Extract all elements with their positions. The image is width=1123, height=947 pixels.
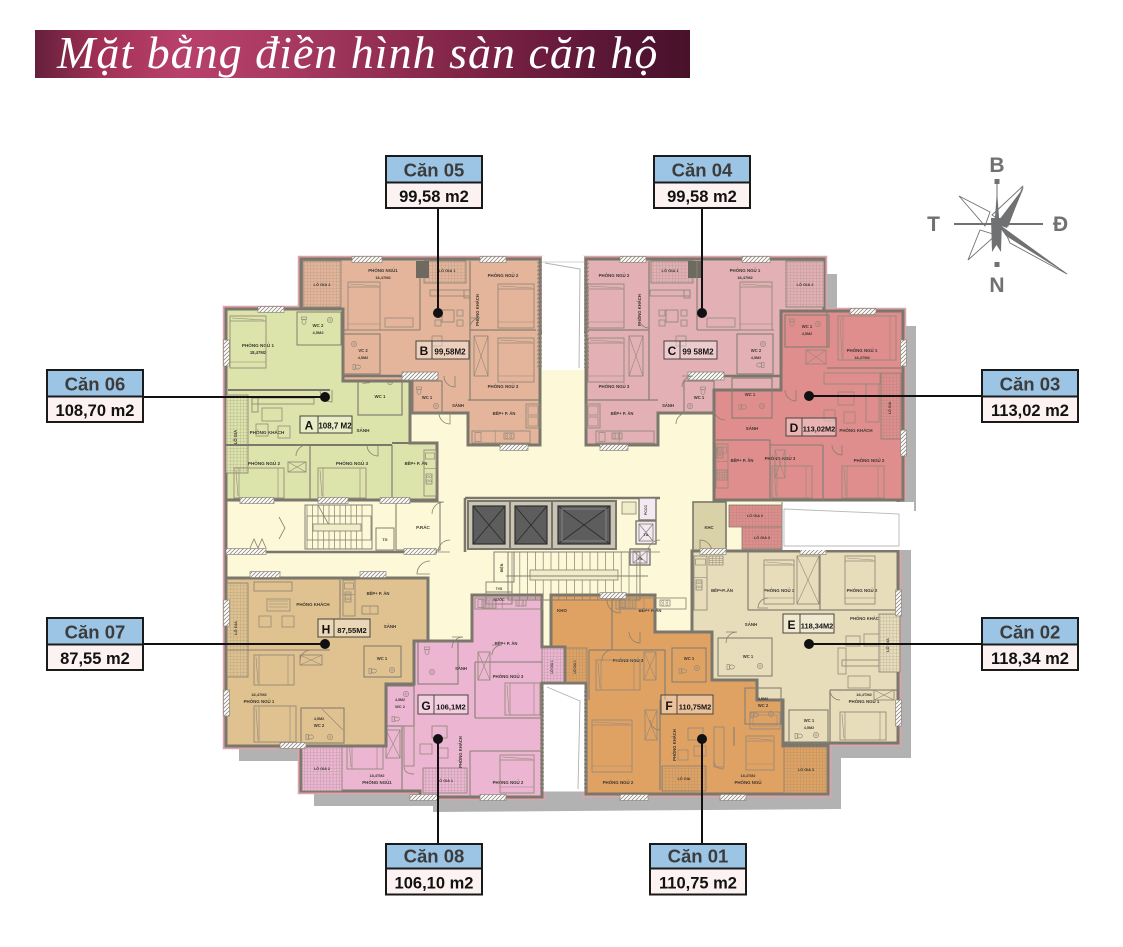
svg-text:TG: TG: [382, 538, 387, 542]
svg-text:TA: TA: [643, 532, 648, 537]
svg-text:PHÒNG NGỦ 2: PHÒNG NGỦ 2: [248, 459, 281, 466]
svg-text:PHÒNG NGỦ 2: PHÒNG NGỦ 2: [603, 780, 634, 785]
svg-text:P.RÁC: P.RÁC: [416, 524, 430, 530]
svg-text:PHÒNG NGỦ 3: PHÒNG NGỦ 3: [493, 674, 524, 679]
svg-text:PHÒNG NGỦ1: PHÒNG NGỦ1: [368, 268, 398, 273]
svg-text:4,5M2: 4,5M2: [751, 356, 762, 360]
svg-text:Căn 06: Căn 06: [65, 374, 126, 395]
svg-text:18,4TM2: 18,4TM2: [741, 774, 756, 778]
svg-text:WC 2: WC 2: [758, 703, 769, 708]
svg-text:Căn 05: Căn 05: [404, 160, 465, 181]
svg-text:18,4TM2: 18,4TM2: [854, 355, 871, 360]
svg-text:PHÒNG NGỦ 3: PHÒNG NGỦ 3: [599, 384, 630, 389]
svg-text:18,47M2: 18,47M2: [250, 350, 267, 355]
svg-text:B: B: [420, 344, 429, 358]
svg-text:108,7 M2: 108,7 M2: [318, 422, 352, 431]
svg-text:PHÒNG NGỦ 1: PHÒNG NGỦ 1: [244, 699, 275, 704]
svg-text:PHÒNG NGỦ: PHÒNG NGỦ: [734, 780, 761, 785]
svg-text:4,5M2: 4,5M2: [358, 356, 369, 360]
svg-text:LÔ GIA 3: LÔ GIA 3: [798, 767, 814, 772]
svg-text:4,5M2: 4,5M2: [312, 330, 324, 335]
svg-text:Căn 03: Căn 03: [1000, 374, 1061, 395]
svg-text:PHÒNG NGỦ 3: PHÒNG NGỦ 3: [488, 384, 519, 389]
svg-text:PHÒNG NGỦ 1: PHÒNG NGỦ 1: [847, 348, 878, 353]
svg-text:PHÒNG NGỦ 2: PHÒNG NGỦ 2: [854, 458, 885, 463]
svg-text:BẾP+ P. ĂN: BẾP+ P. ĂN: [367, 591, 390, 596]
svg-text:PHÒNG KHÁCH: PHÒNG KHÁCH: [475, 294, 480, 326]
svg-text:LÔ GIA 2: LÔ GIA 2: [747, 513, 763, 518]
svg-text:99,58M2: 99,58M2: [434, 348, 466, 357]
svg-text:BẾP+ P. ĂN: BẾP+ P. ĂN: [493, 411, 516, 416]
svg-text:PHÒNG KHÁCH: PHÒNG KHÁCH: [296, 602, 329, 607]
svg-text:110,75 m2: 110,75 m2: [659, 875, 737, 893]
svg-text:SẢNH: SẢNH: [746, 426, 758, 431]
svg-text:WC 1: WC 1: [804, 718, 815, 723]
svg-text:SẢNH: SẢNH: [384, 624, 396, 629]
svg-text:LÔ GIA 1: LÔ GIA 1: [662, 268, 680, 273]
svg-text:WC 1: WC 1: [375, 394, 387, 399]
svg-text:WC 1: WC 1: [422, 395, 433, 400]
svg-text:18,47M2: 18,47M2: [251, 692, 267, 697]
svg-text:18,4TM2: 18,4TM2: [856, 692, 873, 697]
svg-text:BẾP+P..ĂN: BẾP+P..ĂN: [711, 588, 733, 593]
svg-text:ĐIỆN: ĐIỆN: [499, 563, 504, 572]
svg-text:BẾP+ P. ÂN: BẾP+ P. ÂN: [731, 458, 754, 463]
svg-text:87,55 m2: 87,55 m2: [60, 650, 130, 668]
svg-text:113,02 m2: 113,02 m2: [991, 402, 1069, 420]
svg-text:WC 1: WC 1: [377, 656, 388, 661]
svg-text:Căn 02: Căn 02: [1000, 622, 1061, 643]
svg-text:PHÒNG NGỦ 3: PHÒNG NGỦ 3: [764, 588, 795, 593]
svg-text:4,5M2: 4,5M2: [395, 698, 405, 702]
svg-text:4,5M2: 4,5M2: [758, 697, 769, 701]
svg-text:4,5M2: 4,5M2: [314, 717, 325, 721]
svg-text:PHÒNG KHÁCH: PHÒNG KHÁCH: [458, 736, 463, 768]
svg-text:H: H: [322, 623, 331, 637]
svg-text:N: N: [989, 274, 1004, 297]
svg-text:PHÒNG KHÁCH: PHÒNG KHÁCH: [850, 616, 882, 621]
svg-text:99 58M2: 99 58M2: [682, 348, 714, 357]
svg-text:106,10 m2: 106,10 m2: [395, 875, 474, 893]
svg-text:BẾP+ P. ĂN: BẾP+ P. ĂN: [611, 411, 634, 416]
svg-text:Căn 04: Căn 04: [672, 160, 733, 181]
svg-text:WC 1: WC 1: [684, 656, 695, 661]
svg-text:LÔ GIA 2: LÔ GIA 2: [314, 766, 330, 771]
svg-text:SẢNH: SẢNH: [662, 403, 674, 408]
svg-text:T: T: [927, 213, 940, 236]
svg-text:WC 1: WC 1: [743, 654, 754, 659]
svg-text:PHÒNG NGỦ 3: PHÒNG NGỦ 3: [613, 658, 644, 663]
svg-text:WC 2: WC 2: [314, 723, 325, 728]
svg-text:C: C: [668, 344, 677, 358]
svg-text:Căn 08: Căn 08: [404, 846, 465, 867]
svg-text:WC 1: WC 1: [802, 324, 813, 329]
svg-text:4,5M2: 4,5M2: [802, 332, 813, 336]
svg-text:18,47M2: 18,47M2: [375, 275, 391, 280]
svg-text:PHÒNG KHÁCH: PHÒNG KHÁCH: [250, 428, 285, 435]
svg-text:G: G: [421, 699, 430, 713]
svg-text:PHÒNG NGỦ 2: PHÒNG NGỦ 2: [493, 780, 524, 785]
svg-text:LÔ GIA 1: LÔ GIA 1: [439, 268, 457, 273]
svg-text:PHÒNG KHÁCH: PHÒNG KHÁCH: [839, 428, 872, 433]
svg-text:LÔ GIA: LÔ GIA: [887, 401, 892, 414]
svg-text:KHC: KHC: [704, 525, 713, 530]
svg-text:4,5M2: 4,5M2: [804, 726, 815, 730]
svg-text:PHÒNG NGỦ 3: PHÒNG NGỦ 3: [336, 459, 369, 466]
svg-text:PHÒNG NGỦ 1: PHÒNG NGỦ 1: [242, 341, 275, 348]
svg-text:LÔ GIA 3: LÔ GIA 3: [754, 535, 770, 540]
svg-text:E: E: [787, 618, 795, 632]
svg-text:WC 2: WC 2: [395, 704, 406, 709]
svg-text:SẢNH: SẢNH: [455, 666, 467, 671]
svg-text:LÔ GIA: LÔ GIA: [677, 776, 690, 781]
svg-text:PCCC: PCCC: [644, 505, 648, 516]
svg-text:KHO: KHO: [557, 608, 567, 613]
svg-text:99,58 m2: 99,58 m2: [399, 188, 469, 206]
svg-text:LÔ GIA: LÔ GIA: [233, 430, 238, 444]
svg-text:NƯỚC: NƯỚC: [493, 597, 505, 602]
svg-text:PHÒNG NGỦ 2: PHÒNG NGỦ 2: [599, 273, 630, 278]
svg-text:WC 1: WC 1: [745, 392, 756, 397]
svg-text:110,75M2: 110,75M2: [679, 703, 711, 712]
svg-text:LÔ GIA 1: LÔ GIA 1: [572, 660, 577, 674]
svg-text:Căn 01: Căn 01: [668, 846, 729, 867]
svg-text:SẢNH: SẢNH: [745, 622, 757, 627]
svg-text:PHÒNG KHÁCH: PHÒNG KHÁCH: [672, 729, 677, 761]
svg-text:PHÒNG NGỦ 1: PHÒNG NGỦ 1: [730, 268, 761, 273]
svg-text:18,47M2: 18,47M2: [737, 275, 753, 280]
svg-text:Căn 07: Căn 07: [65, 622, 126, 643]
svg-text:Đ: Đ: [1053, 213, 1068, 236]
svg-text:WC 2: WC 2: [313, 323, 325, 328]
svg-text:18,4TM2: 18,4TM2: [370, 774, 385, 778]
svg-text:113,02M2: 113,02M2: [803, 425, 835, 434]
svg-text:B: B: [989, 154, 1004, 177]
svg-text:PHÒNG NGỦ1: PHÒNG NGỦ1: [362, 780, 392, 785]
svg-text:108,70 m2: 108,70 m2: [56, 402, 135, 420]
svg-text:SẢNH: SẢNH: [452, 403, 464, 408]
svg-text:LÔ GIA 1: LÔ GIA 1: [549, 660, 554, 674]
svg-text:LÔ GIA: LÔ GIA: [233, 621, 238, 635]
svg-text:PHÒNG NGỦ 3: PHÒNG NGỦ 3: [765, 456, 796, 461]
svg-text:VC 2: VC 2: [358, 348, 368, 353]
svg-text:LÔ GIA 2: LÔ GIA 2: [314, 282, 332, 287]
svg-text:WC 2: WC 2: [751, 348, 762, 353]
svg-text:118,34 m2: 118,34 m2: [991, 650, 1069, 668]
svg-text:F: F: [665, 699, 672, 713]
svg-text:D: D: [790, 421, 799, 435]
svg-text:LÔ GIA 1: LÔ GIA 1: [437, 778, 453, 783]
svg-text:106,1M2: 106,1M2: [436, 703, 466, 712]
svg-text:A: A: [305, 419, 314, 433]
svg-text:118,34M2: 118,34M2: [801, 622, 833, 631]
svg-text:87,55M2: 87,55M2: [337, 626, 367, 635]
svg-text:SẢNH: SẢNH: [356, 427, 370, 433]
svg-text:LÔ GIA 2: LÔ GIA 2: [797, 282, 815, 287]
svg-text:PHÒNG NGỦ 2: PHÒNG NGỦ 2: [488, 273, 519, 278]
svg-text:99,58 m2: 99,58 m2: [667, 188, 737, 206]
svg-text:TVS: TVS: [496, 587, 503, 591]
svg-text:PHÒNG NGỦ 2: PHÒNG NGỦ 2: [847, 588, 878, 593]
svg-text:WC 1: WC 1: [694, 395, 705, 400]
